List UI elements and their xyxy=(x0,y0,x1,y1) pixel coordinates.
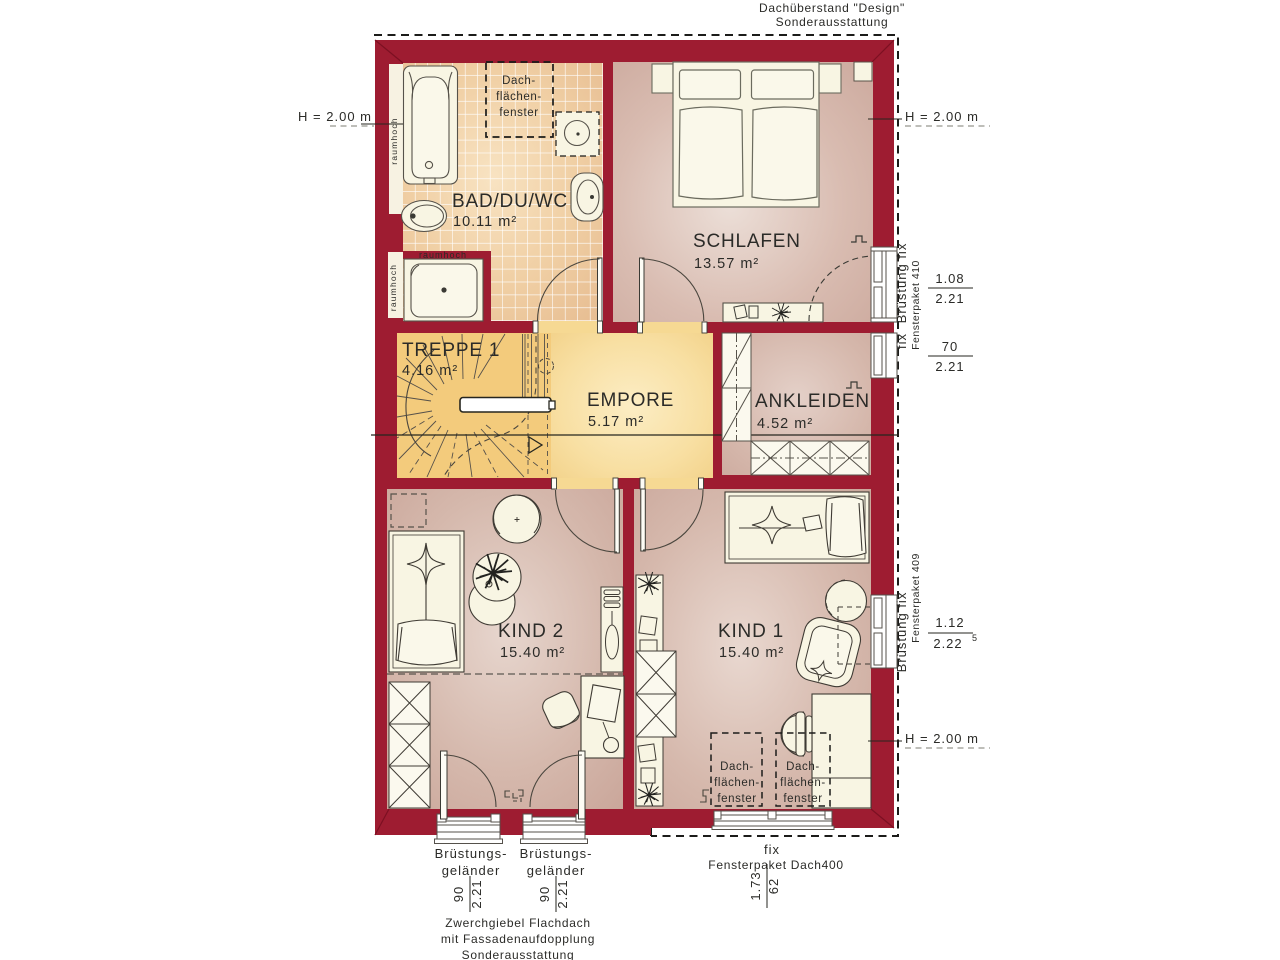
svg-text:15.40 m²: 15.40 m² xyxy=(500,645,565,661)
svg-text:mit Fassadenaufdopplung: mit Fassadenaufdopplung xyxy=(441,932,595,946)
svg-text:H = 2.00 m: H = 2.00 m xyxy=(298,109,372,124)
svg-text:2.21: 2.21 xyxy=(935,359,964,374)
svg-text:Dach-: Dach- xyxy=(786,761,820,773)
svg-text:Sonderausstattung: Sonderausstattung xyxy=(776,15,889,29)
svg-text:Brüstungs-: Brüstungs- xyxy=(520,846,593,861)
svg-text:EMPORE: EMPORE xyxy=(587,390,674,411)
svg-text:SCHLAFEN: SCHLAFEN xyxy=(693,231,801,252)
svg-text:2.21: 2.21 xyxy=(469,879,484,908)
svg-text:15.40 m²: 15.40 m² xyxy=(719,645,784,661)
svg-text:1.73: 1.73 xyxy=(748,871,763,900)
svg-text:Brüstungs-: Brüstungs- xyxy=(435,846,508,861)
svg-text:4.16 m²: 4.16 m² xyxy=(402,363,458,379)
svg-text:5.17 m²: 5.17 m² xyxy=(588,414,644,430)
svg-text:geländer: geländer xyxy=(527,863,586,878)
svg-text:10.11 m²: 10.11 m² xyxy=(453,214,517,230)
svg-text:2.21: 2.21 xyxy=(935,291,964,306)
svg-text:1.12: 1.12 xyxy=(935,615,964,630)
svg-text:4.52 m²: 4.52 m² xyxy=(757,416,813,432)
svg-text:H = 2.00 m: H = 2.00 m xyxy=(905,731,979,746)
svg-text:Fensterpaket 410: Fensterpaket 410 xyxy=(910,260,922,350)
svg-text:90: 90 xyxy=(537,886,552,902)
svg-text:Dach-: Dach- xyxy=(720,761,754,773)
svg-text:KIND 2: KIND 2 xyxy=(498,621,564,642)
svg-text:Brüstung fix: Brüstung fix xyxy=(894,243,909,324)
svg-text:TREPPE 1: TREPPE 1 xyxy=(402,340,500,361)
svg-text:BAD/DU/WC: BAD/DU/WC xyxy=(452,191,568,212)
svg-text:Fensterpaket 409: Fensterpaket 409 xyxy=(910,553,922,643)
svg-text:fenster: fenster xyxy=(783,793,822,805)
svg-text:geländer: geländer xyxy=(442,863,501,878)
svg-text:Fensterpaket Dach400: Fensterpaket Dach400 xyxy=(708,858,843,872)
svg-text:Zwerchgiebel Flachdach: Zwerchgiebel Flachdach xyxy=(445,916,590,930)
svg-text:Brüstung fix: Brüstung fix xyxy=(894,592,909,673)
svg-text:KIND 1: KIND 1 xyxy=(718,621,784,642)
svg-text:1.08: 1.08 xyxy=(935,271,964,286)
svg-text:flächen-: flächen- xyxy=(496,91,542,103)
svg-text:13.57 m²: 13.57 m² xyxy=(694,256,759,272)
svg-text:Sonderausstattung: Sonderausstattung xyxy=(462,948,575,960)
svg-text:70: 70 xyxy=(942,339,958,354)
svg-text:flächen-: flächen- xyxy=(714,777,760,789)
svg-text:fix: fix xyxy=(894,333,909,349)
svg-text:5: 5 xyxy=(972,633,977,643)
svg-text:flächen-: flächen- xyxy=(780,777,826,789)
svg-text:fenster: fenster xyxy=(499,107,538,119)
svg-text:2.21: 2.21 xyxy=(555,879,570,908)
svg-text:fenster: fenster xyxy=(717,793,756,805)
svg-text:Dachüberstand "Design": Dachüberstand "Design" xyxy=(759,1,905,15)
svg-text:ANKLEIDEN: ANKLEIDEN xyxy=(755,391,870,412)
svg-text:H = 2.00 m: H = 2.00 m xyxy=(905,109,979,124)
svg-text:Dach-: Dach- xyxy=(502,75,536,87)
svg-text:62: 62 xyxy=(766,878,781,894)
svg-text:fix: fix xyxy=(764,842,780,857)
svg-text:raumhoch: raumhoch xyxy=(388,264,398,311)
svg-text:90: 90 xyxy=(451,886,466,902)
svg-text:2.22: 2.22 xyxy=(933,636,962,651)
